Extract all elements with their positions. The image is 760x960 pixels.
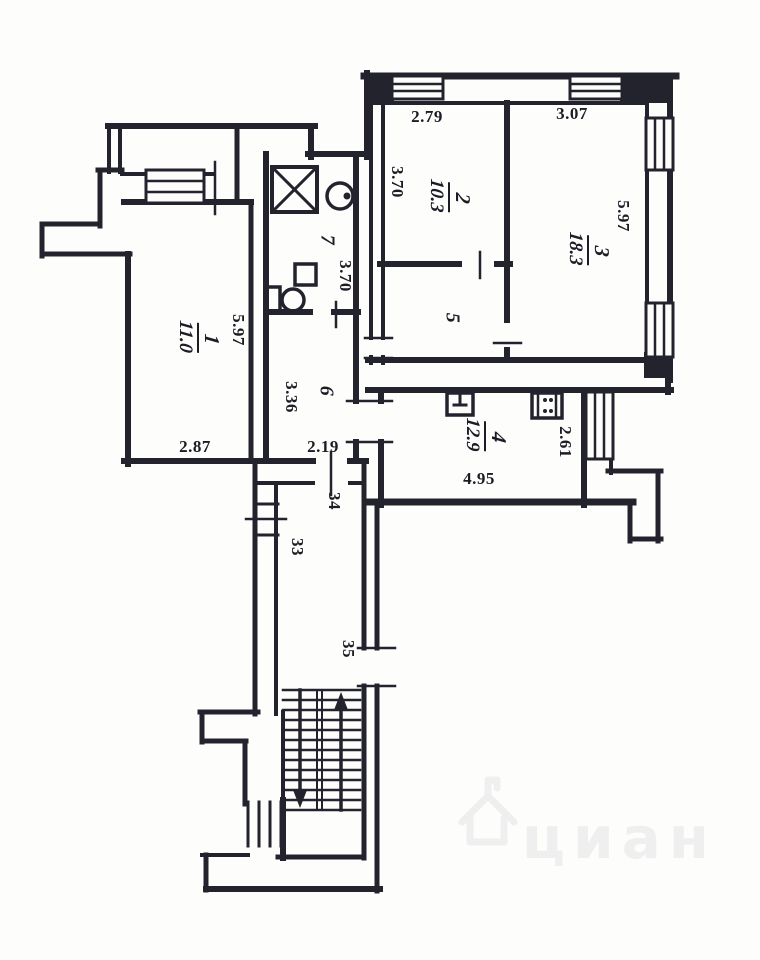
walls xyxy=(42,73,676,891)
window-right-upper-icon xyxy=(646,118,673,170)
room1-label: 1 11.0 xyxy=(176,319,222,356)
window-right-lower-icon xyxy=(646,303,673,357)
room1-area: 11.0 xyxy=(176,319,195,353)
room2-number: 2 xyxy=(452,192,473,205)
floor-plan-page: циан xyxy=(0,0,760,960)
dim-room2-width: 2.79 xyxy=(411,107,443,127)
room2-area: 10.3 xyxy=(427,178,446,213)
room3-label: 3 18.3 xyxy=(566,231,612,269)
dim-bath-depth: 3.70 xyxy=(335,260,355,292)
room4-number: 4 xyxy=(488,431,509,444)
fraction-bar xyxy=(448,182,450,212)
entrance-door-icon xyxy=(248,802,281,846)
fraction-bar xyxy=(484,421,486,451)
window-top-room3-icon xyxy=(570,76,622,99)
dim-room1-width: 2.87 xyxy=(179,437,211,457)
landing-number-34: 34 xyxy=(324,492,344,510)
dim-kitchen-depth: 2.61 xyxy=(555,426,575,458)
fraction-bar xyxy=(587,235,589,265)
dim-kitchen-width: 4.95 xyxy=(463,469,495,489)
bath-sink-icon xyxy=(327,183,357,209)
dim-room3-width: 3.07 xyxy=(556,104,588,124)
kitchen-sink-icon xyxy=(447,393,473,415)
plan-drawing xyxy=(0,0,760,960)
room1-number: 1 xyxy=(201,333,222,346)
landing-number-33: 33 xyxy=(287,538,307,556)
room3-area: 18.3 xyxy=(566,231,585,266)
room3-number: 3 xyxy=(591,245,612,258)
shower-icon xyxy=(272,167,317,212)
washer-icon xyxy=(295,264,316,285)
dim-room1-depth: 5.97 xyxy=(228,314,248,346)
dim-room3-depth: 5.97 xyxy=(613,200,633,232)
window-top-room2-icon xyxy=(392,76,443,99)
window-kitchen-bay-icon xyxy=(586,392,613,459)
landing-number-35: 35 xyxy=(338,640,358,658)
room4-label: 4 12.9 xyxy=(463,417,509,455)
room4-area: 12.9 xyxy=(463,417,482,452)
room5-number: 5 xyxy=(441,313,464,324)
window-left-bay-icon xyxy=(146,170,204,203)
dim-hall-depth: 3.36 xyxy=(281,381,301,413)
dim-room2-depth: 3.70 xyxy=(387,166,407,198)
room7-number: 7 xyxy=(316,235,339,246)
fraction-bar xyxy=(197,323,199,353)
stove-icon xyxy=(532,393,562,418)
dim-hall-width: 2.19 xyxy=(307,437,339,457)
blocked-opening-corridor-icon xyxy=(246,504,286,535)
room6-number: 6 xyxy=(315,386,338,397)
room2-label: 2 10.3 xyxy=(427,178,473,216)
